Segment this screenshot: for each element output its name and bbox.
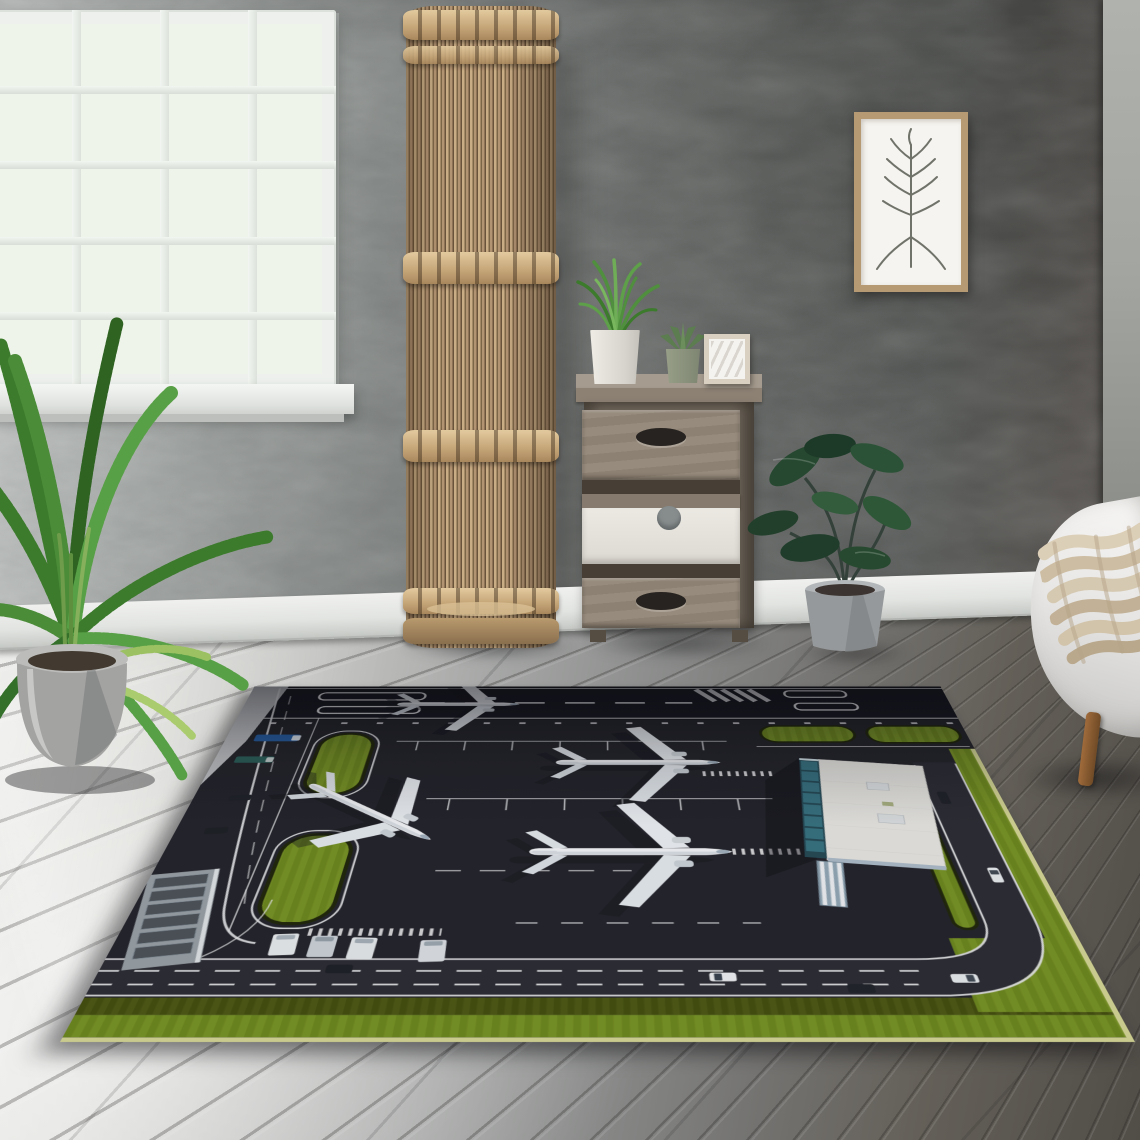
- framed-botanical-print: [854, 112, 968, 292]
- drawer-cutout-handle: [636, 592, 686, 610]
- cabinet-drawer-lip: [582, 494, 740, 508]
- bamboo-band: [403, 430, 559, 462]
- cabinet-shelf-gap: [582, 480, 740, 494]
- bamboo-inner-shelf: [427, 602, 535, 616]
- cabinet-drawer-top: [582, 410, 740, 480]
- window-muntin: [0, 86, 336, 94]
- mini-canvas-frame: [704, 334, 750, 384]
- drawer-cutout-handle: [636, 428, 686, 446]
- sofa-chair: [1018, 468, 1140, 808]
- ficus-leaves: [745, 432, 915, 573]
- bamboo-band: [403, 10, 559, 40]
- bamboo-floor-lamp: [406, 6, 556, 648]
- bamboo-band: [403, 46, 559, 64]
- palm-floor-shadow: [5, 766, 155, 794]
- cabinet-top-edge: [576, 388, 762, 402]
- succulent-pot: [664, 349, 702, 383]
- bamboo-base: [403, 618, 559, 644]
- cabinet-foot: [590, 630, 606, 642]
- botanical-sketch: [861, 119, 961, 285]
- bamboo-slats: [406, 6, 556, 648]
- window-muntin: [0, 237, 336, 245]
- areca-palm: [0, 265, 310, 810]
- rubber-fig-plant: [735, 418, 915, 658]
- white-plant-pot: [588, 330, 642, 384]
- drawer-circle-handle: [657, 506, 681, 530]
- window-muntin: [0, 161, 336, 169]
- living-room-scene: [0, 0, 1140, 1140]
- grass-plant: [566, 256, 666, 336]
- cabinet-drawer-bottom: [582, 578, 740, 628]
- bamboo-band: [403, 252, 559, 284]
- cabinet-shelf-gap: [582, 564, 740, 578]
